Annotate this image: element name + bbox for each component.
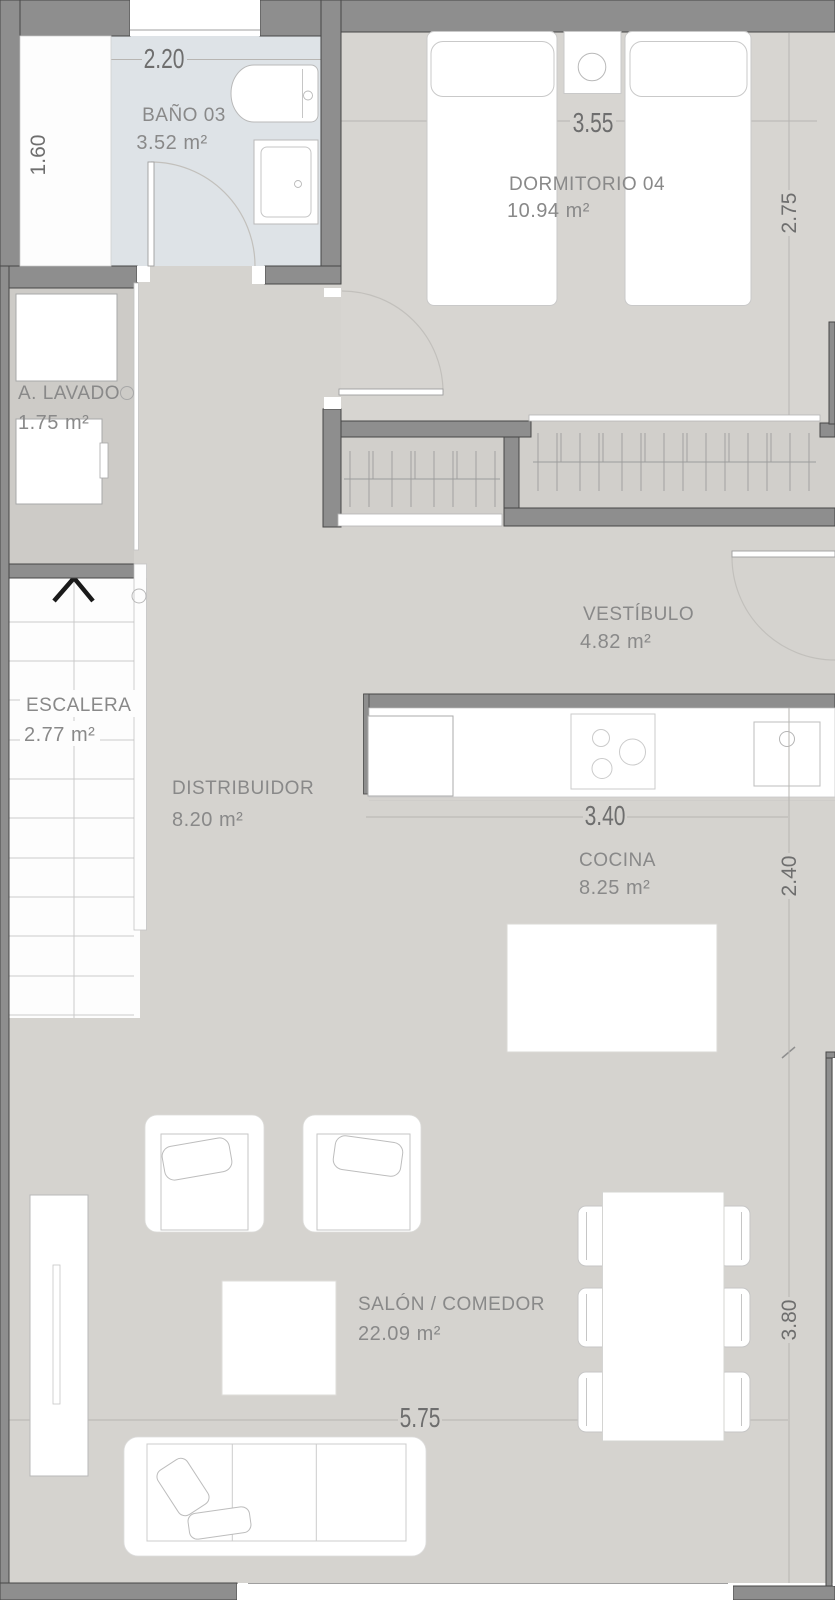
svg-text:2.20: 2.20 (144, 44, 185, 74)
svg-text:3.80: 3.80 (778, 1300, 801, 1341)
svg-text:4.82 m²: 4.82 m² (580, 631, 651, 653)
svg-text:3.40: 3.40 (585, 801, 626, 831)
svg-text:DORMITORIO 04: DORMITORIO 04 (509, 174, 665, 195)
svg-text:VESTÍBULO: VESTÍBULO (583, 604, 694, 625)
svg-text:BAÑO 03: BAÑO 03 (142, 104, 226, 126)
svg-text:5.75: 5.75 (400, 1403, 441, 1433)
svg-text:3.52 m²: 3.52 m² (136, 132, 207, 154)
svg-text:2.77 m²: 2.77 m² (24, 724, 95, 746)
svg-text:3.55: 3.55 (573, 108, 614, 138)
svg-text:8.20 m²: 8.20 m² (172, 809, 243, 831)
svg-text:22.09 m²: 22.09 m² (358, 1323, 441, 1345)
svg-text:ESCALERA: ESCALERA (26, 695, 131, 716)
svg-text:10.94 m²: 10.94 m² (507, 200, 590, 222)
svg-text:1.60: 1.60 (27, 135, 50, 176)
svg-text:A. LAVADO: A. LAVADO (18, 383, 120, 404)
svg-text:1.75 m²: 1.75 m² (18, 412, 89, 434)
svg-text:COCINA: COCINA (579, 850, 656, 871)
svg-text:8.25 m²: 8.25 m² (579, 877, 650, 899)
svg-text:2.75: 2.75 (778, 193, 801, 234)
svg-text:DISTRIBUIDOR: DISTRIBUIDOR (172, 778, 314, 799)
svg-text:SALÓN / COMEDOR: SALÓN / COMEDOR (358, 1293, 545, 1315)
svg-text:2.40: 2.40 (778, 856, 801, 897)
